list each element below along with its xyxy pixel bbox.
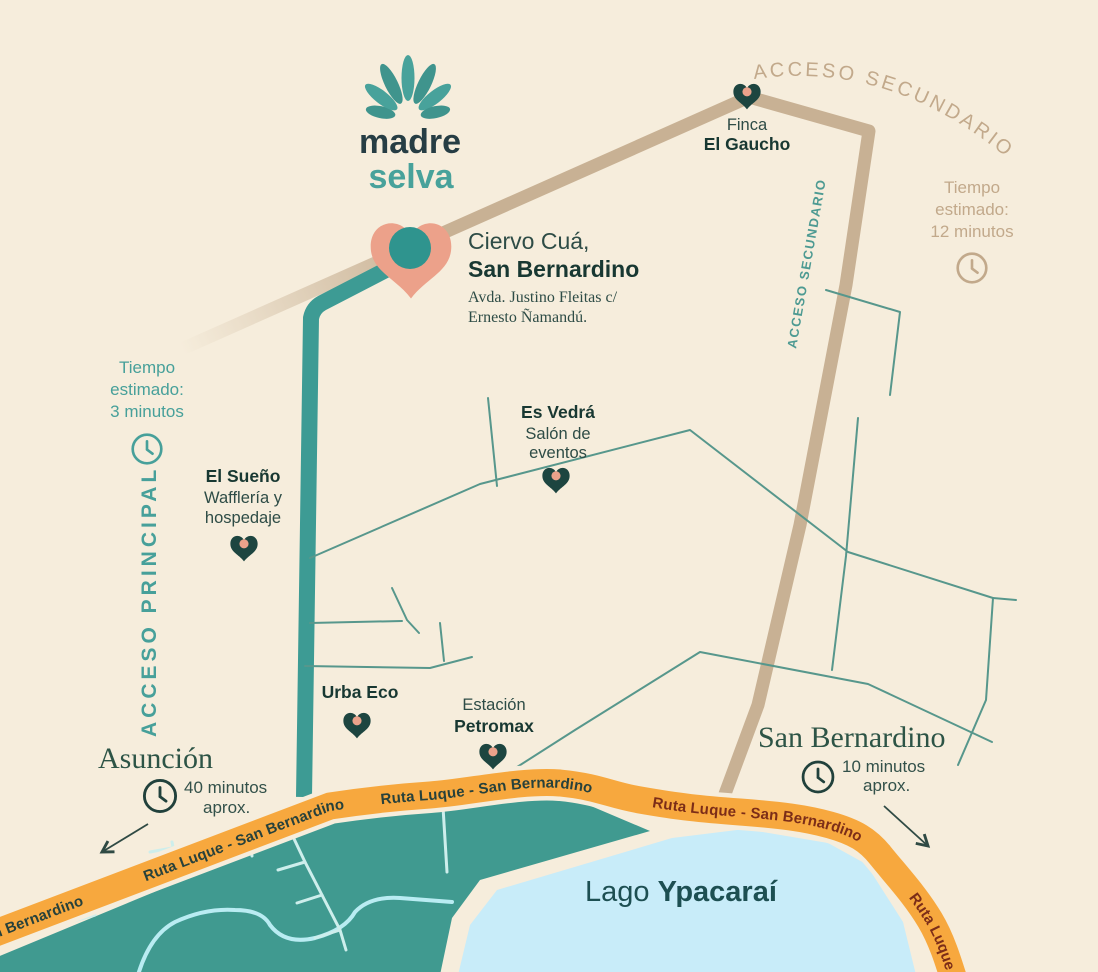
time-secondary-line3: 12 minutos — [930, 222, 1013, 241]
main-location-line1: Ciervo Cuá, — [468, 228, 589, 254]
san-bernardino-city-label: San Bernardino — [758, 721, 945, 754]
poi-es-vedra-line3: eventos — [529, 444, 587, 462]
lake-label: Lago Ypacaraí — [585, 876, 778, 908]
time-secondary-line1: Tiempo — [944, 178, 1000, 197]
asuncion-approx: aprox. — [203, 798, 250, 817]
poi-es-vedra-line1: Es Vedrá — [521, 402, 595, 422]
brand-name-line1: madre — [359, 123, 461, 161]
poi-el-sueno-line1: El Sueño — [206, 466, 281, 486]
poi-es-vedra-line2: Salón de — [525, 425, 590, 443]
san-bernardino-approx: aprox. — [863, 776, 910, 795]
poi-el-sueno-line2: Wafflería y — [204, 489, 283, 507]
lake-label-regular: Lago — [585, 876, 658, 908]
main-location-line2: San Bernardino — [468, 256, 639, 282]
map-canvas: an Bernardino Ruta Luque - San Bernardin… — [0, 0, 1098, 972]
brand-name-line2: selva — [368, 158, 454, 196]
poi-finca-line2: El Gaucho — [704, 134, 791, 154]
time-secondary-line2: estimado: — [935, 200, 1009, 219]
poi-el-sueno-line3: hospedaje — [205, 509, 281, 527]
main-location-address2: Ernesto Ñamandú. — [468, 308, 587, 326]
poi-petromax-line1: Estación — [462, 696, 525, 714]
poi-urba-eco-line1: Urba Eco — [322, 682, 399, 702]
time-main-line3: 3 minutos — [110, 402, 184, 421]
time-main-line1: Tiempo — [119, 358, 175, 377]
asuncion-duration: 40 minutos — [184, 778, 267, 797]
poi-finca-line1: Finca — [727, 116, 768, 134]
san-bernardino-duration: 10 minutos — [842, 757, 925, 776]
main-location-address1: Avda. Justino Fleitas c/ — [468, 289, 618, 306]
poi-petromax-line2: Petromax — [454, 716, 534, 736]
time-main-line2: estimado: — [110, 380, 184, 399]
lake-label-bold: Ypacaraí — [658, 876, 778, 908]
main-pin-circle — [389, 227, 431, 269]
acceso-principal-label: ACCESO PRINCIPAL — [138, 466, 161, 737]
asuncion-city-label: Asunción — [98, 742, 213, 775]
